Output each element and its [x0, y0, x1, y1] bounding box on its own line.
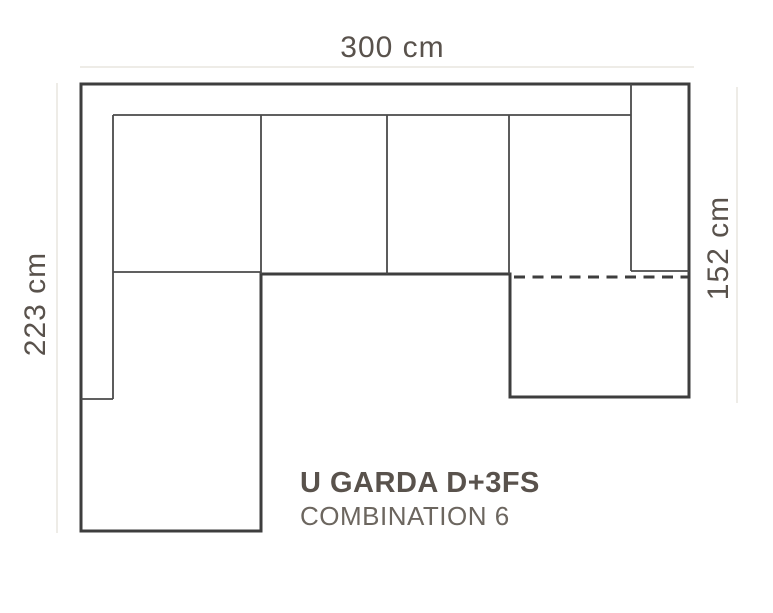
dimension-guide-lines	[57, 67, 737, 533]
sofa-inner-lines	[81, 84, 689, 399]
dimension-label-left-depth: 223 cm	[19, 244, 53, 364]
dimension-label-top-width: 300 cm	[310, 31, 475, 65]
sofa-outer-outline	[81, 84, 689, 531]
dimension-label-right-depth: 152 cm	[702, 185, 736, 311]
product-subtitle: COMBINATION 6	[300, 502, 540, 531]
product-title: U GARDA D+3FS	[300, 469, 540, 498]
product-caption: U GARDA D+3FS COMBINATION 6	[300, 469, 540, 531]
sofa-floorplan-canvas: 300 cm 223 cm 152 cm U GARDA D+3FS COMBI…	[0, 0, 773, 613]
